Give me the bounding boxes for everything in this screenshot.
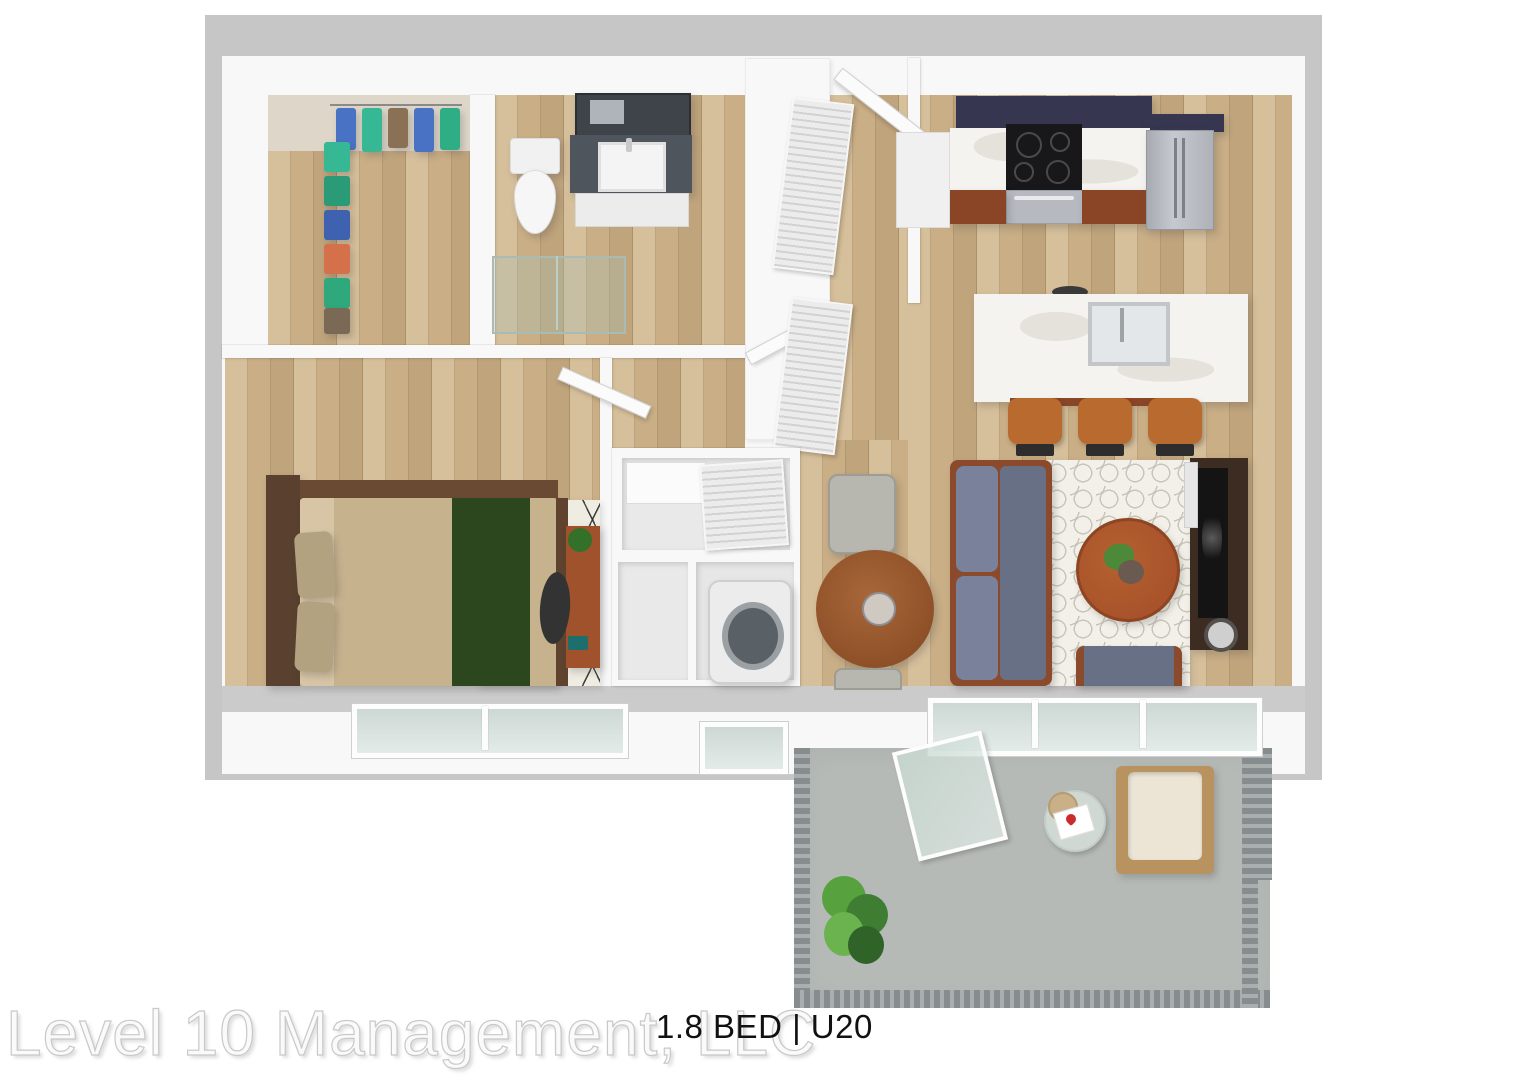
bed-pillow: [294, 531, 337, 599]
sofa-seat: [1000, 466, 1046, 680]
dining-table-centerpiece: [862, 592, 896, 626]
burner: [1014, 162, 1034, 182]
sink-faucet: [626, 138, 632, 152]
hanging-shirt: [388, 108, 408, 148]
coffee-table-plant-pot: [1118, 560, 1144, 584]
washer-door: [722, 602, 784, 670]
closet-rod-top: [330, 104, 462, 106]
bar-stool: [1078, 398, 1132, 444]
fridge-handles: [1174, 138, 1177, 218]
base-cabinet-right: [1082, 190, 1150, 224]
closet-opening-lower-left: [618, 562, 688, 680]
bedroom-window: [352, 704, 628, 758]
bedroom-top-wall: [222, 345, 745, 358]
unit-label: 1.8 BED | U20: [656, 1008, 873, 1046]
hanging-shirt: [440, 108, 460, 150]
toilet-tank: [510, 138, 560, 174]
lounge-chair-cushion: [1128, 772, 1202, 860]
speaker: [1204, 618, 1238, 652]
balcony-plant-foliage: [848, 926, 884, 964]
balcony-railing-bottom: [794, 990, 1270, 1008]
desk-plant: [568, 528, 592, 552]
hanging-garment: [324, 308, 350, 334]
bar-stool: [1008, 398, 1062, 444]
tv-reflection: [1202, 510, 1222, 566]
dining-chair: [828, 474, 896, 554]
bar-stool-legs: [1086, 444, 1124, 456]
island-sink: [1088, 302, 1170, 366]
hanging-shirt: [414, 108, 434, 152]
shower-enclosure: [492, 256, 626, 334]
base-cabinet-left: [950, 190, 1006, 224]
shower-glass-seam: [556, 256, 558, 330]
bedroom-window-mullion: [482, 706, 488, 750]
burner: [1016, 132, 1042, 158]
closet-shelf: [626, 462, 706, 504]
laundry-window: [700, 722, 788, 774]
bar-stool: [1148, 398, 1202, 444]
entry-side-cabinet: [896, 132, 950, 228]
living-glass-mullion: [1140, 700, 1146, 748]
hanging-garment: [324, 142, 350, 172]
fridge-handles: [1182, 138, 1185, 218]
bed-green-runner: [452, 498, 530, 686]
burner: [1046, 160, 1070, 184]
hanging-garment: [324, 210, 350, 240]
mirror-reflection: [590, 100, 624, 124]
bar-stool-legs: [1016, 444, 1054, 456]
closet-louver-door: [699, 459, 789, 551]
island-sink-faucet: [1120, 308, 1124, 342]
balcony-railing-right-slats: [1248, 748, 1272, 880]
hanging-garment: [324, 176, 350, 206]
burner: [1050, 132, 1070, 152]
refrigerator: [1146, 130, 1214, 230]
bed-frame-top: [300, 480, 558, 500]
sofa-back-cushion: [956, 576, 998, 680]
desk-book: [568, 636, 588, 650]
vanity-sink: [598, 142, 666, 192]
living-glass-mullion: [1032, 700, 1038, 748]
hanging-garment: [324, 278, 350, 308]
armchair: [1076, 646, 1182, 686]
bed-pillow: [294, 601, 336, 673]
sofa-back-cushion: [956, 466, 998, 572]
floor-plan-canvas: Level 10 Management, LLC 1.8 BED | U20: [0, 0, 1527, 1080]
bedroom-right-wall: [600, 358, 612, 686]
dining-chair-partial: [834, 668, 902, 690]
soundbar: [1184, 462, 1198, 528]
hanging-shirt: [362, 108, 382, 152]
bar-stool-legs: [1156, 444, 1194, 456]
hanging-garment: [324, 244, 350, 274]
balcony-railing-left: [794, 748, 810, 1008]
oven-handle: [1014, 196, 1074, 200]
vanity-cabinet: [575, 193, 689, 227]
